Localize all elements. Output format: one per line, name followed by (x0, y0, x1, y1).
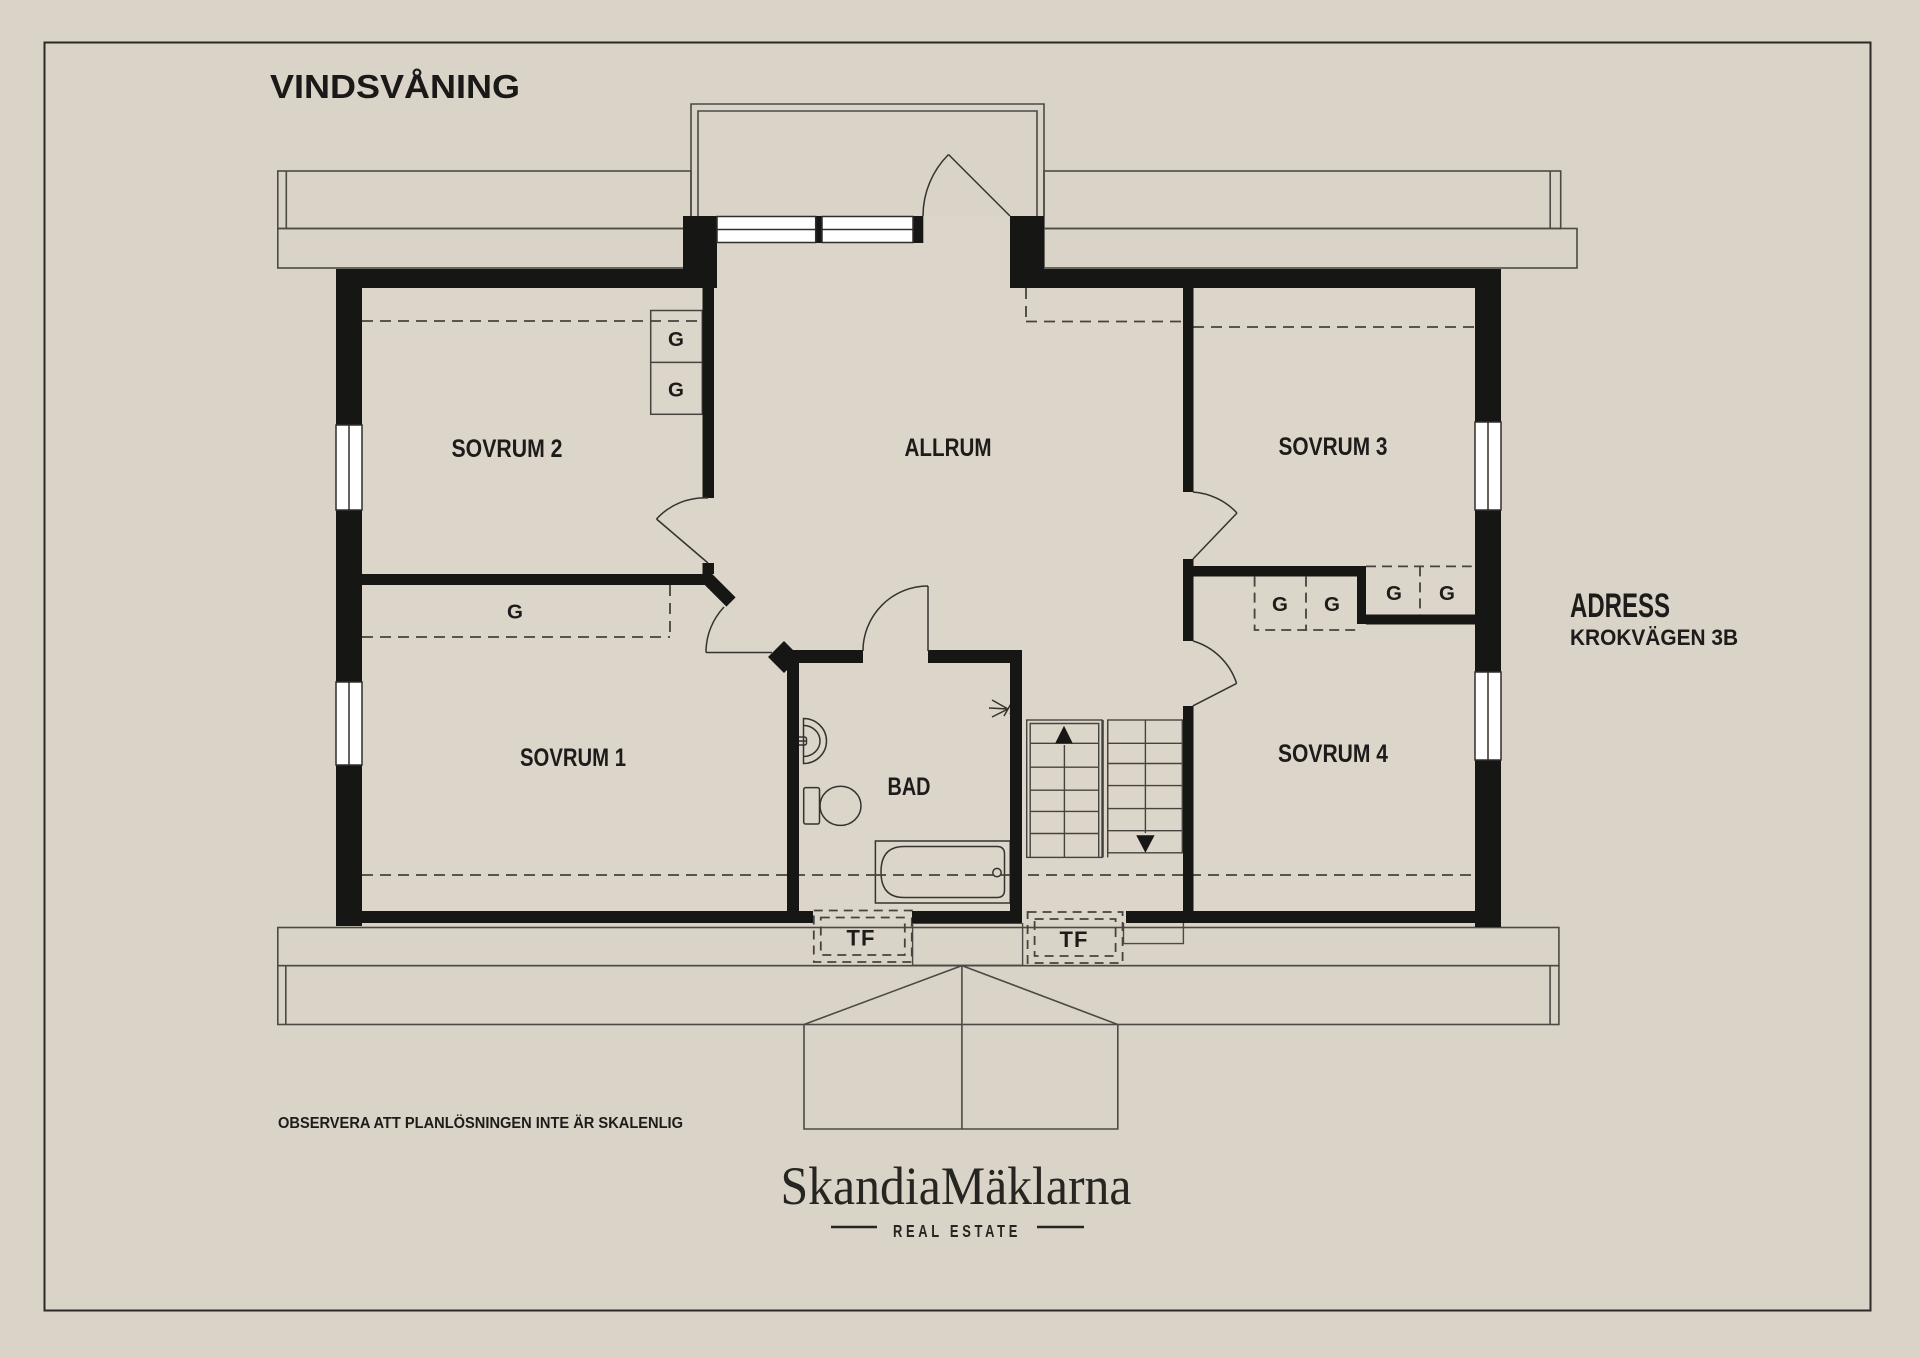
svg-text:G: G (668, 379, 684, 402)
svg-text:KROKVÄGEN 3B: KROKVÄGEN 3B (1570, 625, 1738, 650)
svg-text:SOVRUM 1: SOVRUM 1 (520, 744, 626, 772)
svg-text:SOVRUM 3: SOVRUM 3 (1279, 433, 1388, 461)
svg-text:SkandiaMäklarna: SkandiaMäklarna (781, 1156, 1132, 1216)
svg-text:G: G (507, 601, 523, 624)
svg-text:REAL ESTATE: REAL ESTATE (893, 1221, 1021, 1241)
svg-text:TF: TF (847, 926, 876, 951)
svg-text:BAD: BAD (888, 773, 931, 801)
svg-text:G: G (1272, 593, 1288, 616)
svg-text:ADRESS: ADRESS (1570, 587, 1670, 625)
svg-text:TF: TF (1060, 927, 1089, 952)
svg-text:G: G (1439, 582, 1455, 605)
svg-text:G: G (668, 328, 684, 351)
svg-text:G: G (1324, 593, 1340, 616)
svg-text:G: G (1386, 582, 1402, 605)
svg-text:SOVRUM 2: SOVRUM 2 (452, 435, 563, 463)
svg-text:SOVRUM 4: SOVRUM 4 (1278, 740, 1388, 768)
svg-text:ALLRUM: ALLRUM (905, 434, 992, 462)
svg-text:VINDSVÅNING: VINDSVÅNING (270, 68, 520, 105)
svg-text:OBSERVERA ATT PLANLÖSNINGEN IN: OBSERVERA ATT PLANLÖSNINGEN INTE ÄR SKAL… (278, 1113, 683, 1132)
